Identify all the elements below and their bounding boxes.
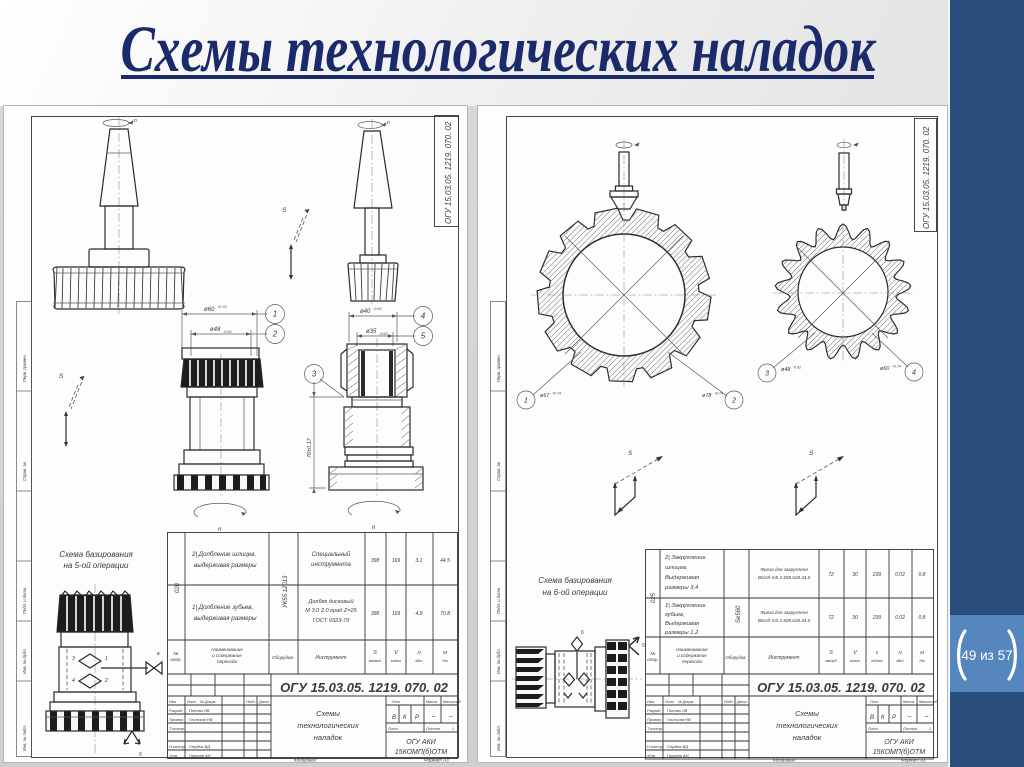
- svg-text:n: n: [876, 650, 879, 655]
- svg-text:мм/мин: мм/мин: [369, 659, 381, 663]
- svg-text:перехода: перехода: [217, 659, 237, 664]
- svg-text:Наименование: Наименование: [211, 647, 243, 652]
- svg-text:Лит.: Лит.: [869, 700, 879, 704]
- svg-text:Лист: Лист: [186, 700, 196, 704]
- svg-text:Наименование: Наименование: [676, 647, 708, 652]
- svg-text:М 3.0 2.0 град Z=25: М 3.0 2.0 град Z=25: [305, 608, 357, 614]
- svg-text:3.1: 3.1: [416, 558, 423, 564]
- svg-text:Н.контр.: Н.контр.: [647, 744, 664, 749]
- svg-text:Перв. примен.: Перв. примен.: [496, 354, 501, 382]
- svg-text:5: 5: [642, 643, 645, 649]
- svg-text:Провер.: Провер.: [169, 717, 184, 722]
- svg-text:ø35: ø35: [366, 329, 377, 335]
- svg-text:ø78: ø78: [702, 393, 712, 399]
- svg-text:Разраб.: Разраб.: [169, 708, 183, 713]
- svg-text:169: 169: [392, 611, 401, 617]
- svg-text:Масштаб: Масштаб: [919, 700, 938, 704]
- svg-text:наладок: наладок: [793, 733, 822, 742]
- svg-text:44.5: 44.5: [440, 558, 450, 564]
- svg-text:Схема базирования: Схема базирования: [538, 576, 612, 585]
- svg-text:Специальный: Специальный: [312, 551, 351, 558]
- svg-text:N: N: [417, 650, 421, 655]
- svg-text:Схемы: Схемы: [316, 709, 340, 718]
- svg-text:Подп. и дата: Подп. и дата: [22, 587, 27, 614]
- svg-text:025: 025: [651, 592, 657, 603]
- svg-text:№ Докум.: № Докум.: [200, 700, 216, 704]
- svg-text:Инв. № подл.: Инв. № подл.: [496, 725, 501, 751]
- svg-text:инструмента: инструмента: [311, 562, 351, 568]
- svg-text:4: 4: [72, 678, 75, 684]
- svg-text:Выдерживая: Выдерживая: [665, 621, 699, 627]
- svg-text:15КОМП(б)ОТМ: 15КОМП(б)ОТМ: [873, 748, 926, 756]
- svg-text:Масса: Масса: [903, 700, 914, 704]
- svg-text:ø60: ø60: [880, 366, 890, 372]
- svg-text:V: V: [394, 650, 399, 656]
- svg-text:2| Долбление шлицев,: 2| Долбление шлицев,: [191, 551, 256, 558]
- svg-text:70.8: 70.8: [440, 611, 450, 617]
- svg-text:Разраб.: Разраб.: [647, 708, 661, 713]
- svg-text:ø48: ø48: [781, 367, 791, 373]
- svg-text:76±0.17: 76±0.17: [307, 437, 313, 458]
- svg-text:зубьев,: зубьев,: [664, 612, 685, 618]
- svg-text:Оборудов.: Оборудов.: [272, 655, 294, 660]
- svg-text:1| Долбление зубьев,: 1| Долбление зубьев,: [192, 604, 253, 611]
- svg-text:–: –: [907, 714, 912, 720]
- svg-text:В: В: [392, 715, 396, 721]
- svg-text:Дата: Дата: [258, 700, 268, 704]
- svg-text:Попова ЛВ: Попова ЛВ: [667, 708, 688, 713]
- svg-text:№ Докум.: № Докум.: [678, 700, 694, 704]
- svg-text:Формат А3: Формат А3: [901, 758, 926, 763]
- svg-text:Выдерживая: Выдерживая: [665, 575, 699, 581]
- svg-text:72: 72: [828, 572, 834, 578]
- svg-text:Глинская НВ: Глинская НВ: [189, 717, 213, 722]
- svg-text:ОГУ 15.03.05. 1219. 070. 02: ОГУ 15.03.05. 1219. 070. 02: [280, 680, 449, 695]
- svg-text:ø48: ø48: [210, 327, 221, 333]
- svg-text:1| Закругление: 1| Закругление: [665, 603, 706, 609]
- svg-text:ОГУ АКИ: ОГУ АКИ: [406, 739, 436, 746]
- svg-text:выдерживая размеры: выдерживая размеры: [194, 615, 257, 622]
- svg-text:Фреза для закругленя: Фреза для закругленя: [760, 567, 808, 572]
- svg-text:Инв. № дубл.: Инв. № дубл.: [496, 648, 501, 674]
- svg-text:ОГУ 15.03.05. 1219. 070. 02: ОГУ 15.03.05. 1219. 070. 02: [922, 126, 931, 229]
- svg-text:Инструмент: Инструмент: [768, 655, 799, 661]
- svg-text:ГОСТ 9323-79: ГОСТ 9323-79: [313, 618, 350, 624]
- svg-text:1: 1: [929, 727, 931, 731]
- svg-text:239: 239: [872, 572, 882, 578]
- svg-text:в: в: [157, 651, 160, 657]
- svg-text:№: №: [651, 651, 656, 656]
- svg-text:Т.контр.: Т.контр.: [647, 726, 663, 731]
- svg-text:Горячев АН: Горячев АН: [667, 753, 689, 758]
- svg-text:30: 30: [852, 615, 858, 621]
- svg-text:169: 169: [392, 558, 401, 564]
- svg-text:М: М: [920, 650, 924, 655]
- svg-text:на 5-ой операции: на 5-ой операции: [64, 561, 130, 570]
- svg-text:м/мин: м/мин: [391, 659, 401, 663]
- svg-text:5: 5: [421, 332, 426, 341]
- svg-text:на 6-ой операции: на 6-ой операции: [543, 588, 609, 597]
- svg-text:Глинская НВ: Глинская НВ: [667, 717, 691, 722]
- svg-text:+0.74: +0.74: [714, 392, 723, 396]
- svg-text:Утв.: Утв.: [169, 753, 178, 758]
- svg-text:Копировал: Копировал: [294, 758, 317, 763]
- svg-text:опер.: опер.: [170, 657, 181, 662]
- svg-text:Провер.: Провер.: [647, 717, 662, 722]
- svg-text:1: 1: [452, 727, 454, 731]
- svg-text:№: №: [174, 651, 179, 656]
- svg-text:4: 4: [912, 368, 916, 377]
- svg-text:Долбяк дисковый: Долбяк дисковый: [307, 598, 353, 605]
- svg-text:398: 398: [371, 558, 380, 564]
- svg-text:n: n: [372, 525, 376, 531]
- svg-text:Лист: Лист: [664, 700, 674, 704]
- svg-text:49 из 57: 49 из 57: [961, 648, 1012, 663]
- svg-text:4.9: 4.9: [416, 611, 423, 617]
- svg-text:6: 6: [581, 630, 584, 636]
- svg-text:Sе560: Sе560: [736, 605, 742, 623]
- svg-text:Нм: Нм: [919, 659, 925, 663]
- svg-text:Масса: Масса: [426, 700, 437, 704]
- svg-text:2: 2: [272, 330, 278, 339]
- svg-text:72: 72: [828, 615, 834, 621]
- svg-text:0.02: 0.02: [895, 572, 905, 578]
- svg-text:0.02: 0.02: [895, 615, 905, 621]
- svg-text:-0.62: -0.62: [223, 330, 233, 334]
- svg-text:К: К: [881, 715, 885, 721]
- svg-text:Инв. № подл.: Инв. № подл.: [22, 725, 27, 751]
- svg-text:Листов: Листов: [902, 727, 917, 731]
- svg-text:Оборудов.: Оборудов.: [725, 655, 746, 660]
- svg-text:Изм.: Изм.: [647, 700, 655, 704]
- svg-text:Схема базирования: Схема базирования: [59, 550, 133, 559]
- svg-text:ОГУ 15.03.05. 1219. 070. 02: ОГУ 15.03.05. 1219. 070. 02: [757, 680, 926, 695]
- svg-text:S: S: [59, 373, 64, 380]
- svg-text:Инв. № дубл.: Инв. № дубл.: [22, 648, 27, 674]
- svg-text:Копировал: Копировал: [773, 758, 796, 763]
- svg-text:Bosch m3 2.608.628.34.0: Bosch m3 2.608.628.34.0: [758, 618, 811, 623]
- svg-text:Изм.: Изм.: [169, 700, 177, 704]
- svg-text:1: 1: [105, 656, 108, 662]
- svg-text:0.8: 0.8: [919, 572, 926, 578]
- svg-text:ø40: ø40: [360, 309, 371, 315]
- svg-text:S: S: [282, 207, 287, 214]
- svg-text:М: М: [443, 650, 447, 655]
- svg-text:размеры 3,4: размеры 3,4: [664, 585, 698, 591]
- svg-text:–: –: [431, 714, 436, 720]
- svg-text:об/мин: об/мин: [871, 659, 882, 663]
- svg-text:Дата: Дата: [736, 700, 746, 704]
- svg-text:Листов: Листов: [425, 727, 440, 731]
- svg-text:2: 2: [731, 396, 737, 405]
- svg-text:Нм: Нм: [442, 659, 448, 663]
- svg-text:Р: Р: [415, 715, 419, 721]
- svg-text:Bosch m5 2.608.628.34.0: Bosch m5 2.608.628.34.0: [758, 575, 811, 580]
- svg-text:Горячев АН: Горячев АН: [189, 753, 211, 758]
- svg-text:Сердюк ВД: Сердюк ВД: [189, 744, 210, 749]
- svg-text:+0.74: +0.74: [892, 365, 901, 369]
- svg-text:Лист: Лист: [387, 727, 398, 731]
- svg-text:ОГУ АКИ: ОГУ АКИ: [884, 739, 914, 746]
- svg-text:Утв.: Утв.: [647, 753, 656, 758]
- svg-text:3: 3: [72, 656, 75, 662]
- svg-text:15КОМП(б)ОТМ: 15КОМП(б)ОТМ: [395, 748, 448, 756]
- svg-text:технологических: технологических: [776, 721, 838, 730]
- svg-text:опер.: опер.: [647, 657, 658, 662]
- svg-text:–: –: [924, 714, 929, 720]
- svg-text:Попова ЛВ: Попова ЛВ: [189, 708, 210, 713]
- svg-text:V: V: [853, 650, 858, 656]
- svg-text:n: n: [134, 118, 137, 124]
- svg-text:Подп.: Подп.: [724, 700, 734, 704]
- svg-text:выдерживая размеры: выдерживая размеры: [194, 562, 257, 569]
- svg-text:020: 020: [175, 582, 181, 593]
- svg-text:4: 4: [421, 312, 426, 321]
- svg-text:2: 2: [104, 678, 108, 684]
- svg-text:Перв. примен.: Перв. примен.: [22, 354, 27, 382]
- svg-text:S: S: [373, 650, 377, 656]
- svg-text:Лит.: Лит.: [391, 700, 401, 704]
- svg-text:шлицев,: шлицев,: [665, 565, 687, 571]
- svg-text:S: S: [628, 450, 633, 457]
- svg-text:К: К: [403, 715, 407, 721]
- svg-text:Лист: Лист: [867, 727, 878, 731]
- svg-text:Инструмент: Инструмент: [315, 655, 346, 661]
- svg-text:239: 239: [872, 615, 882, 621]
- svg-text:В: В: [870, 715, 874, 721]
- svg-text:Подп. и дата: Подп. и дата: [496, 587, 501, 614]
- svg-text:-0.62: -0.62: [793, 366, 801, 370]
- svg-text:Схемы: Схемы: [795, 709, 819, 718]
- svg-text:Масштаб: Масштаб: [443, 700, 462, 704]
- svg-text:Т.контр.: Т.контр.: [169, 726, 185, 731]
- svg-text:ø60: ø60: [204, 307, 215, 313]
- svg-text:0.8: 0.8: [919, 615, 926, 621]
- svg-text:перехода: перехода: [682, 659, 702, 664]
- svg-text:Фреза для закругленя: Фреза для закругленя: [760, 610, 808, 615]
- svg-text:-0.62: -0.62: [373, 307, 383, 311]
- svg-text:S: S: [829, 650, 833, 656]
- svg-text:мм/зуб: мм/зуб: [825, 659, 837, 663]
- svg-text:и содержание: и содержание: [212, 653, 242, 658]
- svg-text:кВт: кВт: [415, 659, 422, 663]
- svg-text:S: S: [809, 450, 814, 457]
- svg-text:Р: Р: [892, 715, 896, 721]
- svg-text:–: –: [448, 714, 453, 720]
- svg-text:3: 3: [765, 369, 770, 378]
- svg-text:Справ. №: Справ. №: [22, 462, 27, 481]
- svg-text:1: 1: [273, 310, 277, 319]
- svg-text:n: n: [387, 120, 390, 126]
- svg-text:2| Закругление: 2| Закругление: [664, 555, 706, 561]
- svg-text:м/мин: м/мин: [850, 659, 860, 663]
- svg-text:Формат А3: Формат А3: [424, 758, 449, 763]
- svg-text:+0.74: +0.74: [217, 305, 227, 309]
- svg-text:3: 3: [312, 370, 317, 379]
- svg-text:-0.62: -0.62: [379, 332, 389, 336]
- svg-text:Сердюк ВД: Сердюк ВД: [667, 744, 688, 749]
- svg-text:5: 5: [139, 752, 142, 758]
- svg-text:технологических: технологических: [297, 721, 359, 730]
- svg-text:кВт: кВт: [896, 659, 903, 663]
- svg-text:Справ. №: Справ. №: [496, 462, 501, 481]
- svg-text:УК55 12013: УК55 12013: [283, 575, 289, 609]
- svg-text:ОГУ 15.03.05. 1219. 070. 02: ОГУ 15.03.05. 1219. 070. 02: [444, 121, 453, 224]
- svg-text:ø67: ø67: [540, 393, 550, 399]
- svg-text:Подп.: Подп.: [246, 700, 256, 704]
- svg-text:+0.74: +0.74: [552, 392, 561, 396]
- svg-text:размеры 1,2: размеры 1,2: [664, 630, 699, 636]
- svg-text:Н.контр.: Н.контр.: [169, 744, 186, 749]
- svg-text:N: N: [898, 650, 902, 655]
- svg-text:30: 30: [852, 572, 858, 578]
- svg-text:398: 398: [371, 611, 380, 617]
- svg-text:наладок: наладок: [314, 733, 343, 742]
- svg-text:1: 1: [524, 396, 528, 405]
- svg-text:и содержание: и содержание: [677, 653, 707, 658]
